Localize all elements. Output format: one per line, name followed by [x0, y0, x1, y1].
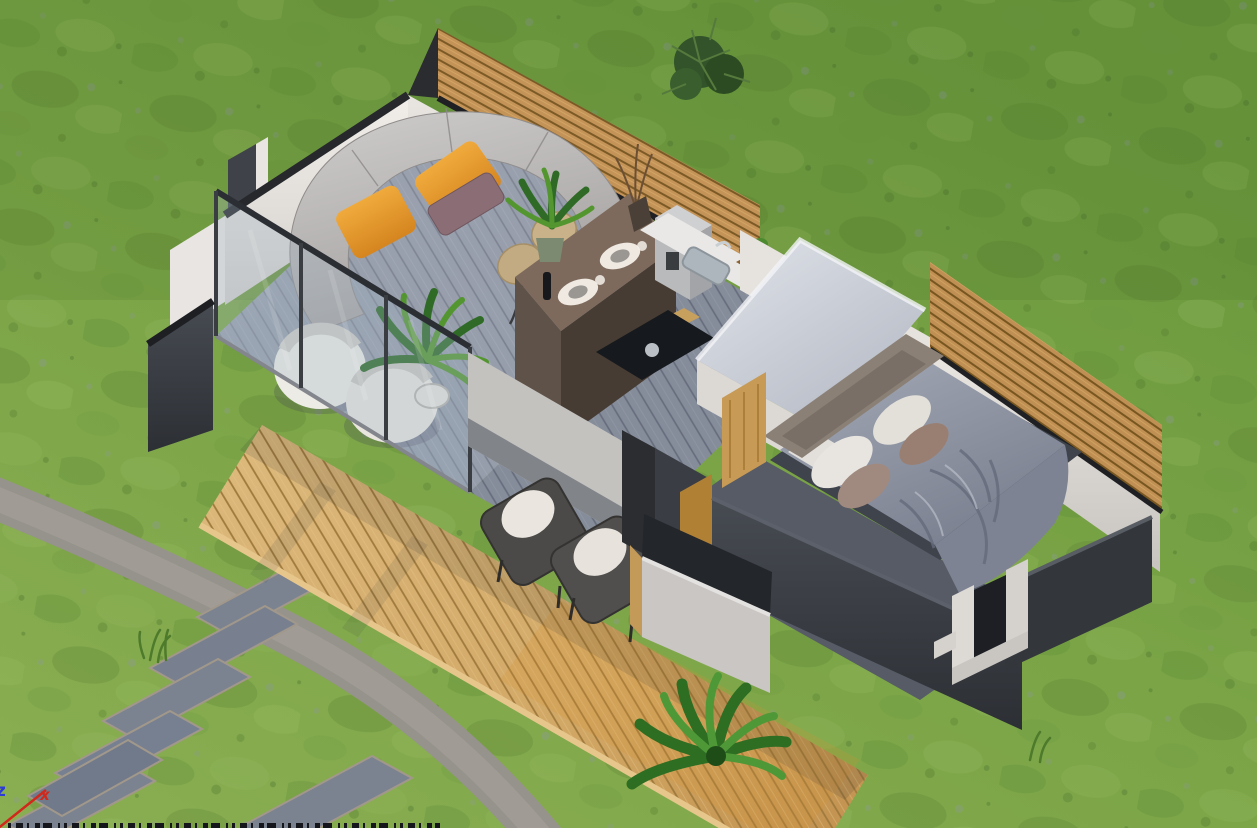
axis-x-label: x	[39, 786, 51, 804]
wine-glass	[637, 241, 647, 251]
isometric-house-render: x z	[0, 0, 1257, 828]
wine-glass	[595, 275, 605, 285]
wine-bottle	[543, 272, 551, 300]
entry-planter-timber-edge	[630, 545, 642, 637]
render-canvas: x z	[0, 0, 1257, 828]
axis-z-label: z	[0, 781, 6, 801]
chimney-recess	[666, 252, 679, 270]
glass-on-counter	[645, 343, 659, 357]
plant-pot-green	[536, 238, 564, 262]
